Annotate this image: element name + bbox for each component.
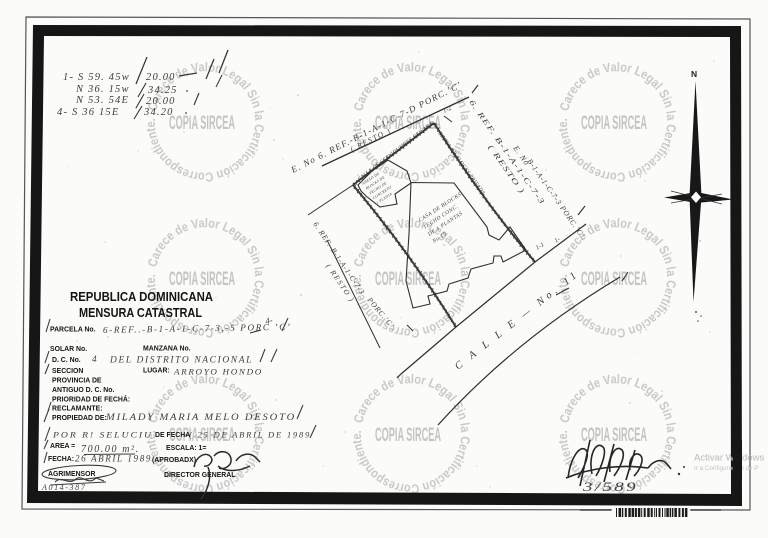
svg-text:(APROBADX): (APROBADX) <box>152 457 196 464</box>
svg-text:N 36. 15w: N 36. 15w <box>75 84 130 95</box>
svg-text:PROPIEDAD DE:: PROPIEDAD DE: <box>52 415 107 422</box>
svg-text:N 53. 54E: N 53. 54E <box>75 95 129 106</box>
svg-text:DEL DISTRITO NACIONAL: DEL DISTRITO NACIONAL <box>109 355 253 365</box>
svg-text:3/589: 3/589 <box>582 479 638 494</box>
svg-text:MANZANA No.: MANZANA No. <box>143 346 191 353</box>
svg-text:4: 4 <box>92 354 98 364</box>
svg-text:20.00: 20.00 <box>146 96 176 107</box>
svg-text:POR R! SELUCIU: POR R! SELUCIU <box>52 431 153 440</box>
svg-text:SECCION: SECCION <box>52 368 83 375</box>
svg-text:Activar Windows: Activar Windows <box>694 453 764 464</box>
svg-text:Ir a Configuración de P: Ir a Configuración de P <box>694 465 758 472</box>
svg-text:MENSURA CATASTRAL: MENSURA CATASTRAL <box>79 305 202 320</box>
svg-text:34.25: 34.25 <box>147 85 178 96</box>
svg-text:D. C. No.: D. C. No. <box>52 357 81 364</box>
svg-text:RECLAMANTE:: RECLAMANTE: <box>52 406 103 413</box>
svg-text:1- S 59. 45w: 1- S 59. 45w <box>63 72 130 83</box>
svg-text:PARCELA No.: PARCELA No. <box>50 327 96 334</box>
svg-text:PRIORIDAD DE FECHÁ:: PRIORIDAD DE FECHÁ: <box>52 395 130 404</box>
svg-text:20.00: 20.00 <box>146 72 176 83</box>
svg-text:DIRECTOR GENERAL: DIRECTOR GENERAL <box>164 472 235 479</box>
svg-text:ANTIGUO D. C. No.: ANTIGUO D. C. No. <box>52 387 114 394</box>
svg-text:ARROYO HONDO: ARROYO HONDO <box>173 367 263 377</box>
svg-text:FECHA:: FECHA: <box>48 456 74 463</box>
svg-text:MILADY MARIA MELO DESOTO: MILADY MARIA MELO DESOTO <box>105 412 296 422</box>
svg-text:DE FECHA: DE FECHA <box>155 432 190 439</box>
svg-text:( 25 DE ABRIL DE 1989: ( 25 DE ABRIL DE 1989 <box>189 431 311 440</box>
svg-text:34.20: 34.20 <box>143 107 174 118</box>
svg-text:PROVINCIA DE: PROVINCIA DE <box>52 378 102 385</box>
svg-text:AREA =: AREA = <box>50 443 75 450</box>
svg-text:N: N <box>691 69 697 79</box>
svg-text:ESCALA: 1=: ESCALA: 1= <box>166 445 206 452</box>
svg-text:REPUBLICA DOMINICANA: REPUBLICA DOMINICANA <box>70 289 213 304</box>
svg-text:AGRIMENSOR: AGRIMENSOR <box>48 471 95 478</box>
svg-text:4- S 36 15E: 4- S 36 15E <box>57 107 120 118</box>
svg-text:26 ABRIL 1989: 26 ABRIL 1989 <box>75 454 152 464</box>
svg-text:LUGAR:: LUGAR: <box>143 368 170 375</box>
svg-text:SOLAR No.: SOLAR No. <box>50 346 87 353</box>
